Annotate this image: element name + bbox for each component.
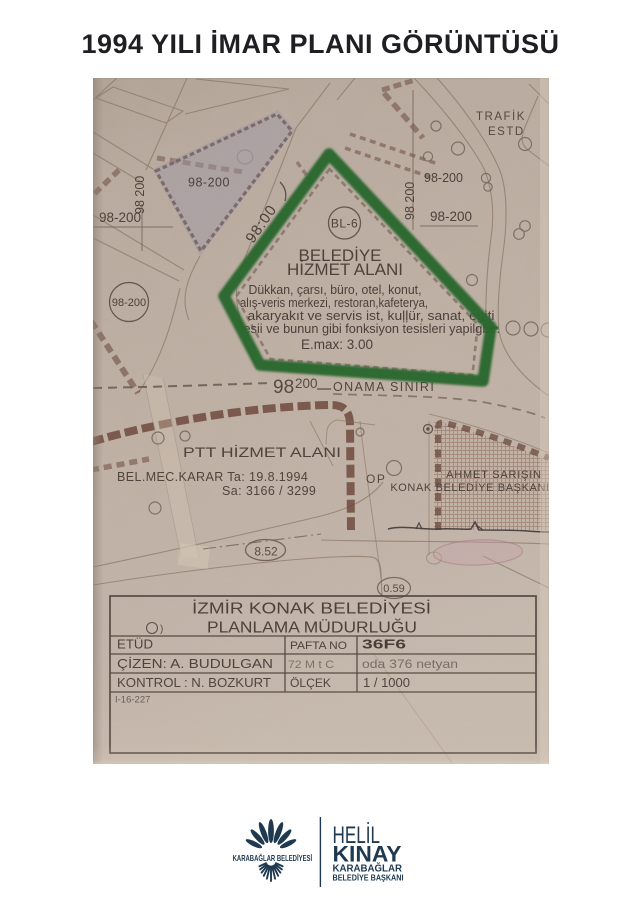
svg-text:İZMİR KONAK BELEDİYESİ: İZMİR KONAK BELEDİYESİ bbox=[192, 599, 431, 618]
svg-text:98: 98 bbox=[273, 377, 294, 398]
svg-text:98-200: 98-200 bbox=[430, 209, 472, 224]
svg-text:AHMET SARIŞIN: AHMET SARIŞIN bbox=[446, 469, 542, 481]
svg-text:98 200: 98 200 bbox=[133, 176, 147, 214]
svg-text:98-200: 98-200 bbox=[112, 297, 146, 309]
svg-text:98-200: 98-200 bbox=[424, 171, 463, 185]
svg-text:PTT HİZMET ALANI: PTT HİZMET ALANI bbox=[183, 443, 341, 460]
svg-text:E.max: 3.00: E.max: 3.00 bbox=[301, 337, 373, 352]
svg-text:BL-6: BL-6 bbox=[331, 217, 358, 231]
svg-text:): ) bbox=[160, 624, 163, 635]
svg-text:akaryakıt ve servis ist, kuļļü: akaryakıt ve servis ist, kuļļür, sanat, … bbox=[248, 309, 495, 323]
svg-text:0.59: 0.59 bbox=[383, 583, 404, 595]
svg-text:HİZMET ALANI: HİZMET ALANI bbox=[287, 260, 403, 279]
svg-text:8.52: 8.52 bbox=[254, 545, 278, 559]
svg-text:PLANLAMA MÜDURLUĞU: PLANLAMA MÜDURLUĞU bbox=[207, 618, 417, 637]
svg-text:BEL.MEC.KARAR Ta: 19.8.1994: BEL.MEC.KARAR Ta: 19.8.1994 bbox=[117, 470, 308, 484]
svg-text:KONAK BELEDİYE BAŞKANI: KONAK BELEDİYE BAŞKANI bbox=[390, 481, 549, 494]
svg-text:KARABAĞLAR BELEDİYESİ: KARABAĞLAR BELEDİYESİ bbox=[233, 852, 313, 863]
svg-text:ESTD: ESTD bbox=[488, 126, 525, 138]
svg-text:98-200: 98-200 bbox=[99, 210, 141, 225]
svg-text:alış-veris merkezi, restoran,k: alış-veris merkezi, restoran,kafeterya, bbox=[240, 296, 428, 310]
svg-text:Sa: 3166 / 3299: Sa: 3166 / 3299 bbox=[222, 484, 316, 498]
svg-text:98 200: 98 200 bbox=[403, 182, 417, 220]
svg-text:98-200: 98-200 bbox=[188, 176, 230, 190]
svg-text:Dükkan, çarsı, büro, otel, kon: Dükkan, çarsı, büro, otel, konut, bbox=[249, 283, 422, 297]
svg-text:tesii ve bunun gibi fonksiyon: tesii ve bunun gibi fonksiyon tesisleri … bbox=[240, 322, 500, 336]
svg-text:BELEDİYE BAŞKANI: BELEDİYE BAŞKANI bbox=[333, 874, 404, 883]
svg-text:200: 200 bbox=[295, 376, 318, 391]
svg-text:TRAFİK: TRAFİK bbox=[476, 110, 526, 123]
svg-text:OP: OP bbox=[366, 472, 386, 486]
